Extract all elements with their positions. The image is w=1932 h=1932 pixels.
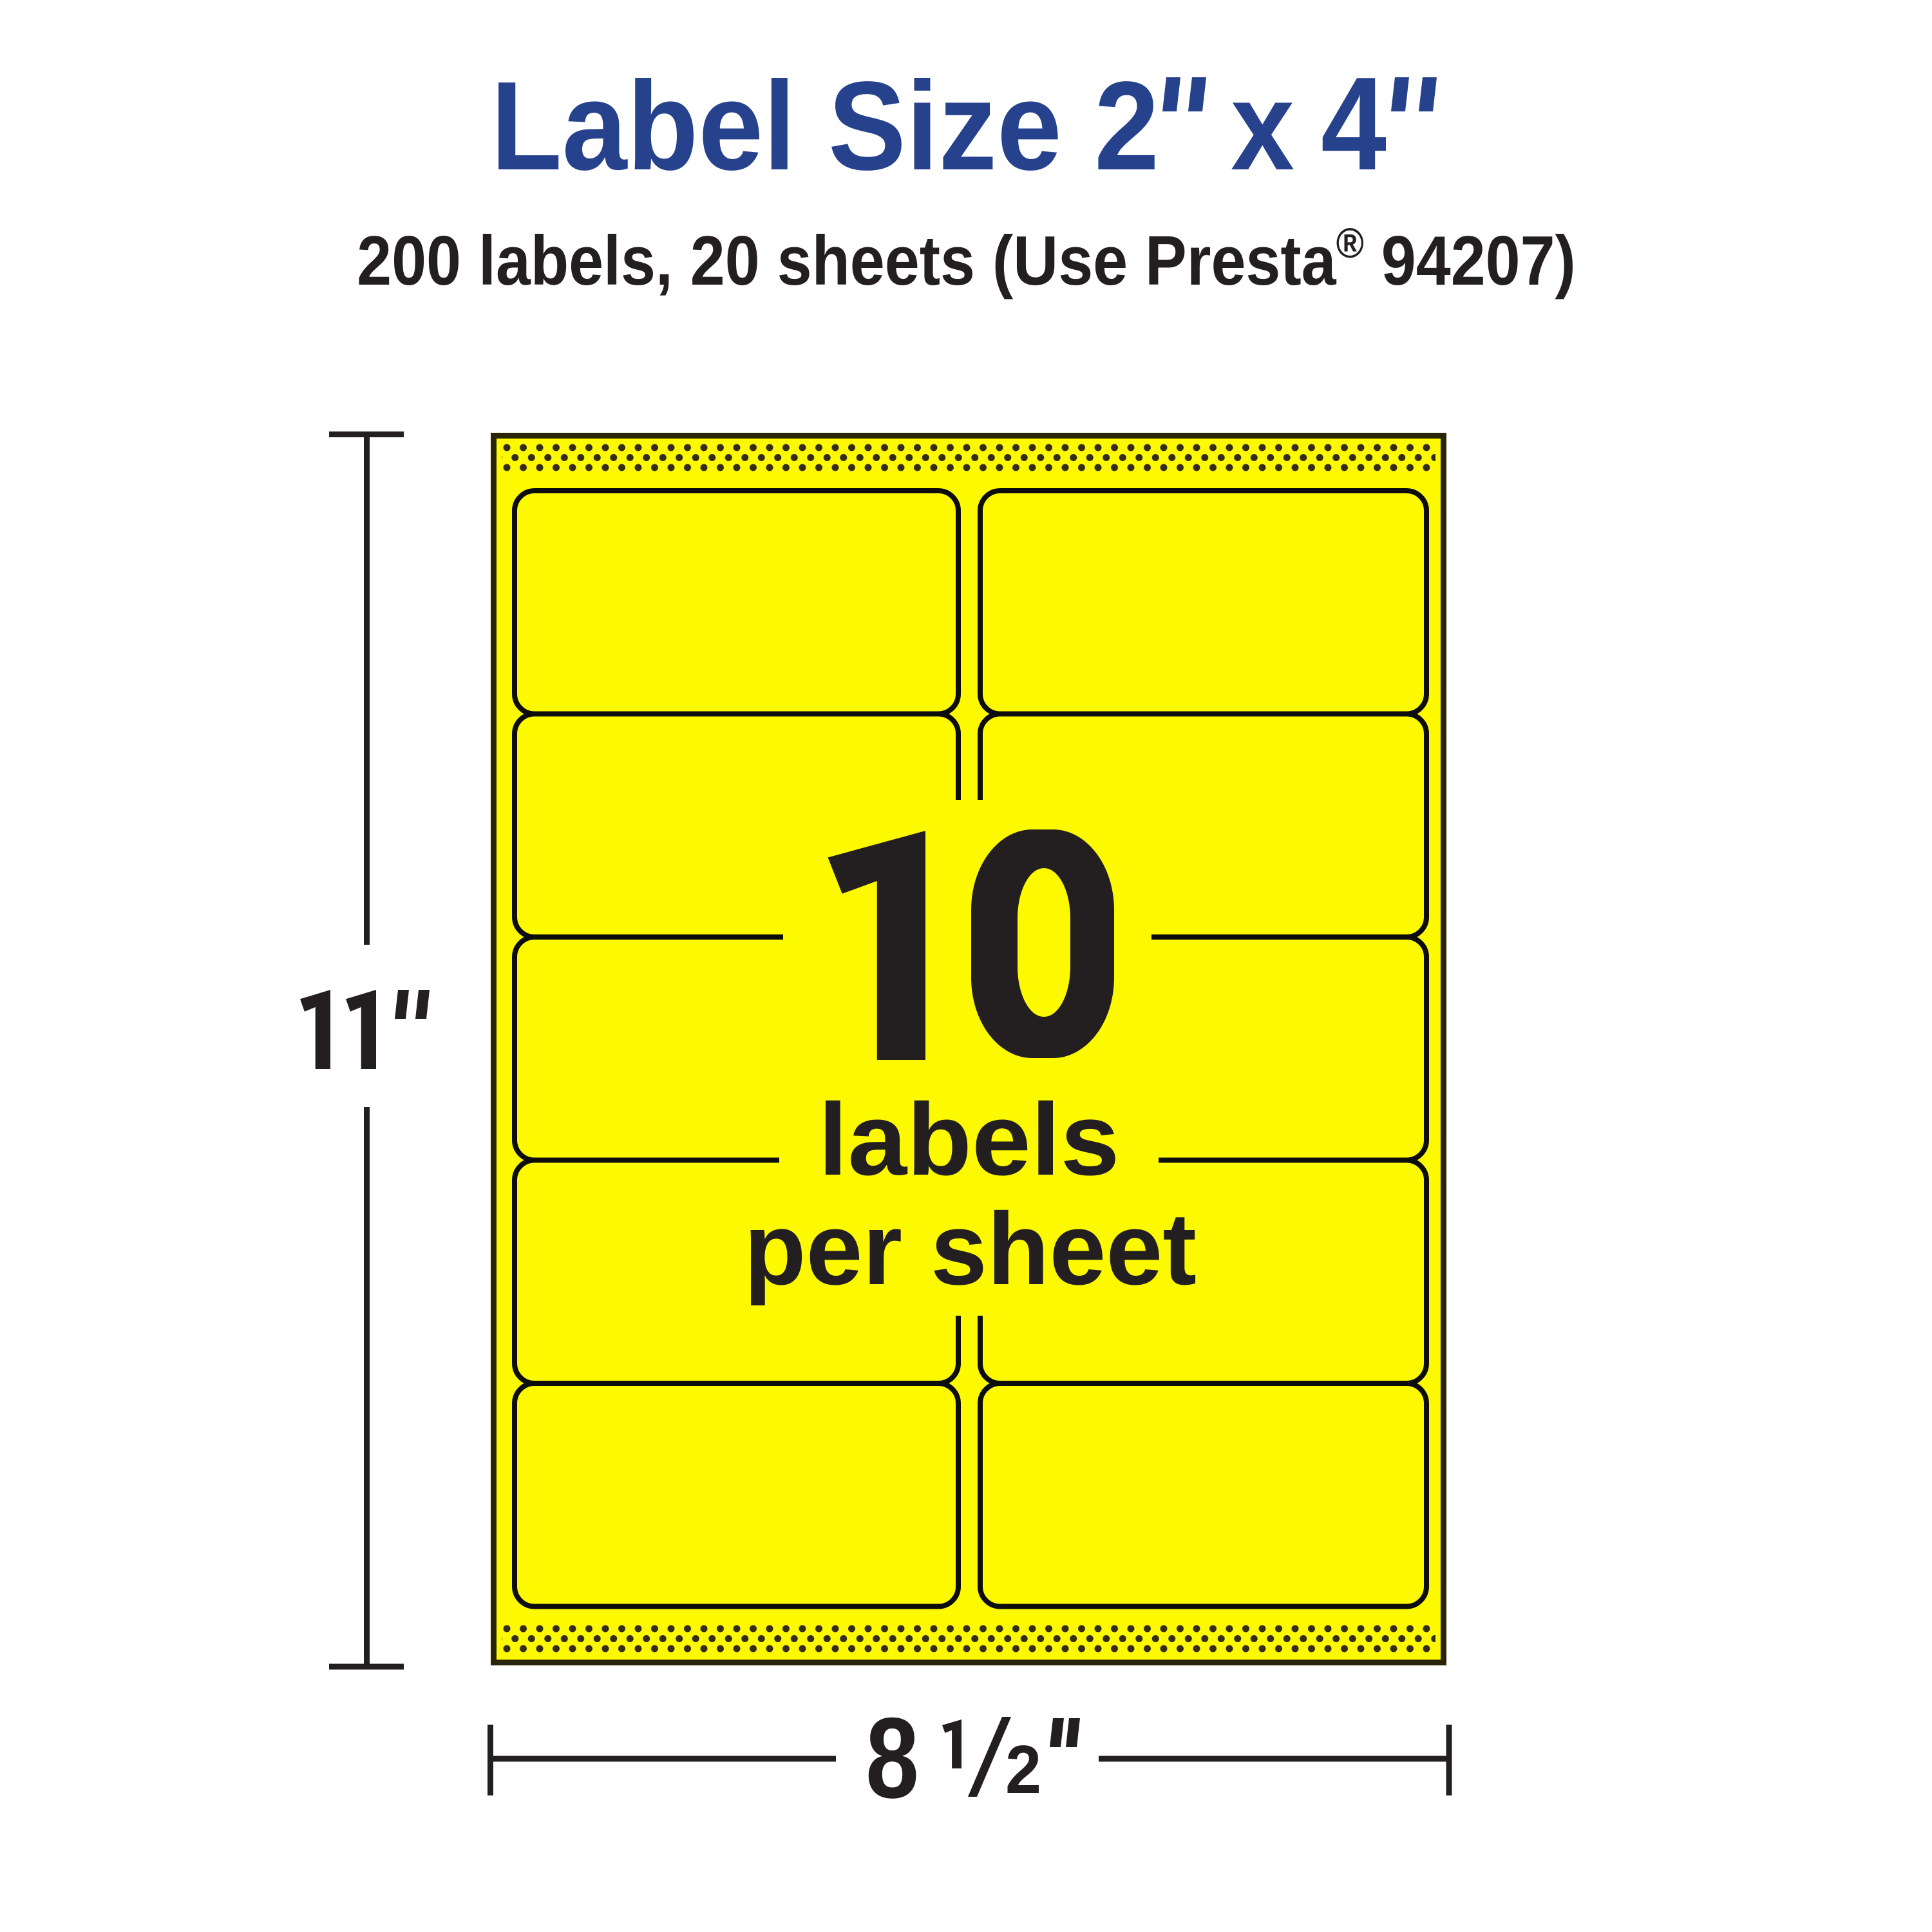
svg-text:x: x [1231, 55, 1294, 196]
svg-text:2: 2 [1005, 1732, 1041, 1808]
svg-text:Label Size 2: Label Size 2 [491, 55, 1159, 196]
svg-text:labels: labels [819, 1082, 1120, 1197]
svg-text:4: 4 [1321, 50, 1387, 198]
svg-text:200 labels, 20 sheets (Use Pre: 200 labels, 20 sheets (Use Presta® 94207… [357, 220, 1576, 299]
svg-text:per sheet: per sheet [744, 1191, 1197, 1306]
svg-text:8: 8 [866, 1694, 919, 1822]
